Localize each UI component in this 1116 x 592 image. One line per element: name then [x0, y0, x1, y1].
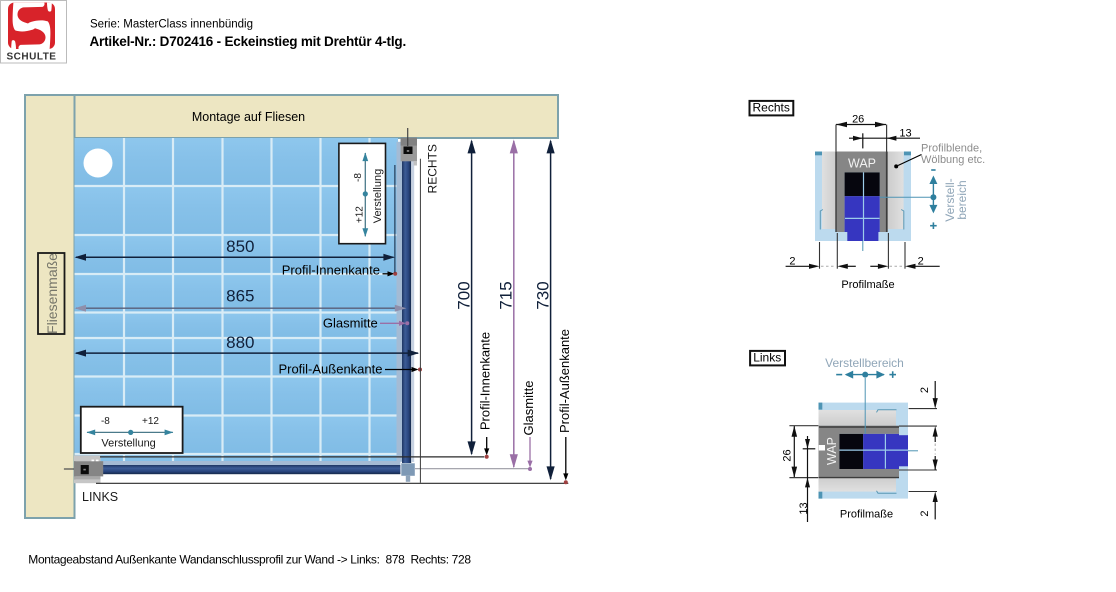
svg-text:Rechts: Rechts: [753, 101, 790, 115]
svg-text:Artikel-Nr.: D702416 - Eckeins: Artikel-Nr.: D702416 - Eckeinstieg mit D…: [90, 34, 407, 49]
svg-text:26: 26: [852, 114, 864, 126]
svg-text:Profil-Innenkante: Profil-Innenkante: [478, 332, 493, 430]
svg-text:865: 865: [226, 287, 254, 306]
svg-text:Links: Links: [753, 351, 781, 365]
svg-text:-8: -8: [353, 173, 364, 182]
svg-text:2: 2: [789, 256, 795, 268]
svg-text:Fliesenmaße: Fliesenmaße: [44, 253, 60, 334]
svg-text:Profil-Außenkante: Profil-Außenkante: [278, 362, 382, 377]
svg-text:LINKS: LINKS: [82, 490, 118, 504]
svg-text:880: 880: [226, 333, 254, 352]
svg-text:Profilmaße: Profilmaße: [840, 509, 893, 521]
svg-text:715: 715: [497, 281, 516, 309]
svg-text:26: 26: [782, 449, 794, 461]
svg-text:-8: -8: [101, 416, 110, 427]
svg-text:730: 730: [533, 281, 552, 309]
svg-text:SCHULTE: SCHULTE: [7, 52, 57, 63]
svg-text:Verstellung: Verstellung: [372, 169, 384, 223]
svg-text:+12: +12: [354, 206, 365, 223]
svg-text:Serie: MasterClass innenbündig: Serie: MasterClass innenbündig: [90, 19, 253, 31]
svg-text:Verstellung: Verstellung: [101, 437, 155, 449]
svg-text:Profilblende,: Profilblende,: [921, 143, 982, 155]
svg-text:+12: +12: [142, 416, 159, 427]
svg-text:850: 850: [226, 237, 254, 256]
svg-text:700: 700: [454, 281, 473, 309]
svg-text:2: 2: [919, 387, 931, 393]
svg-text:Montage auf Fliesen: Montage auf Fliesen: [192, 110, 305, 124]
svg-text:RECHTS: RECHTS: [425, 144, 439, 193]
svg-text:Glasmitte: Glasmitte: [323, 316, 378, 331]
svg-text:Profilmaße: Profilmaße: [841, 279, 894, 291]
svg-text:WAP: WAP: [825, 437, 839, 465]
svg-text:2: 2: [919, 511, 931, 517]
svg-text:bereich: bereich: [955, 180, 969, 219]
svg-text:Montageabstand Außenkante Wand: Montageabstand Außenkante Wandanschlussp…: [28, 553, 471, 567]
svg-text:Wölbung etc.: Wölbung etc.: [921, 154, 985, 166]
svg-text:2: 2: [918, 256, 924, 268]
svg-text:Verstellbereich: Verstellbereich: [825, 356, 904, 370]
svg-text:Glasmitte: Glasmitte: [521, 381, 536, 436]
svg-text:WAP: WAP: [848, 157, 876, 171]
svg-text:Profil-Außenkante: Profil-Außenkante: [557, 329, 572, 433]
svg-text:Profil-Innenkante: Profil-Innenkante: [282, 263, 380, 278]
